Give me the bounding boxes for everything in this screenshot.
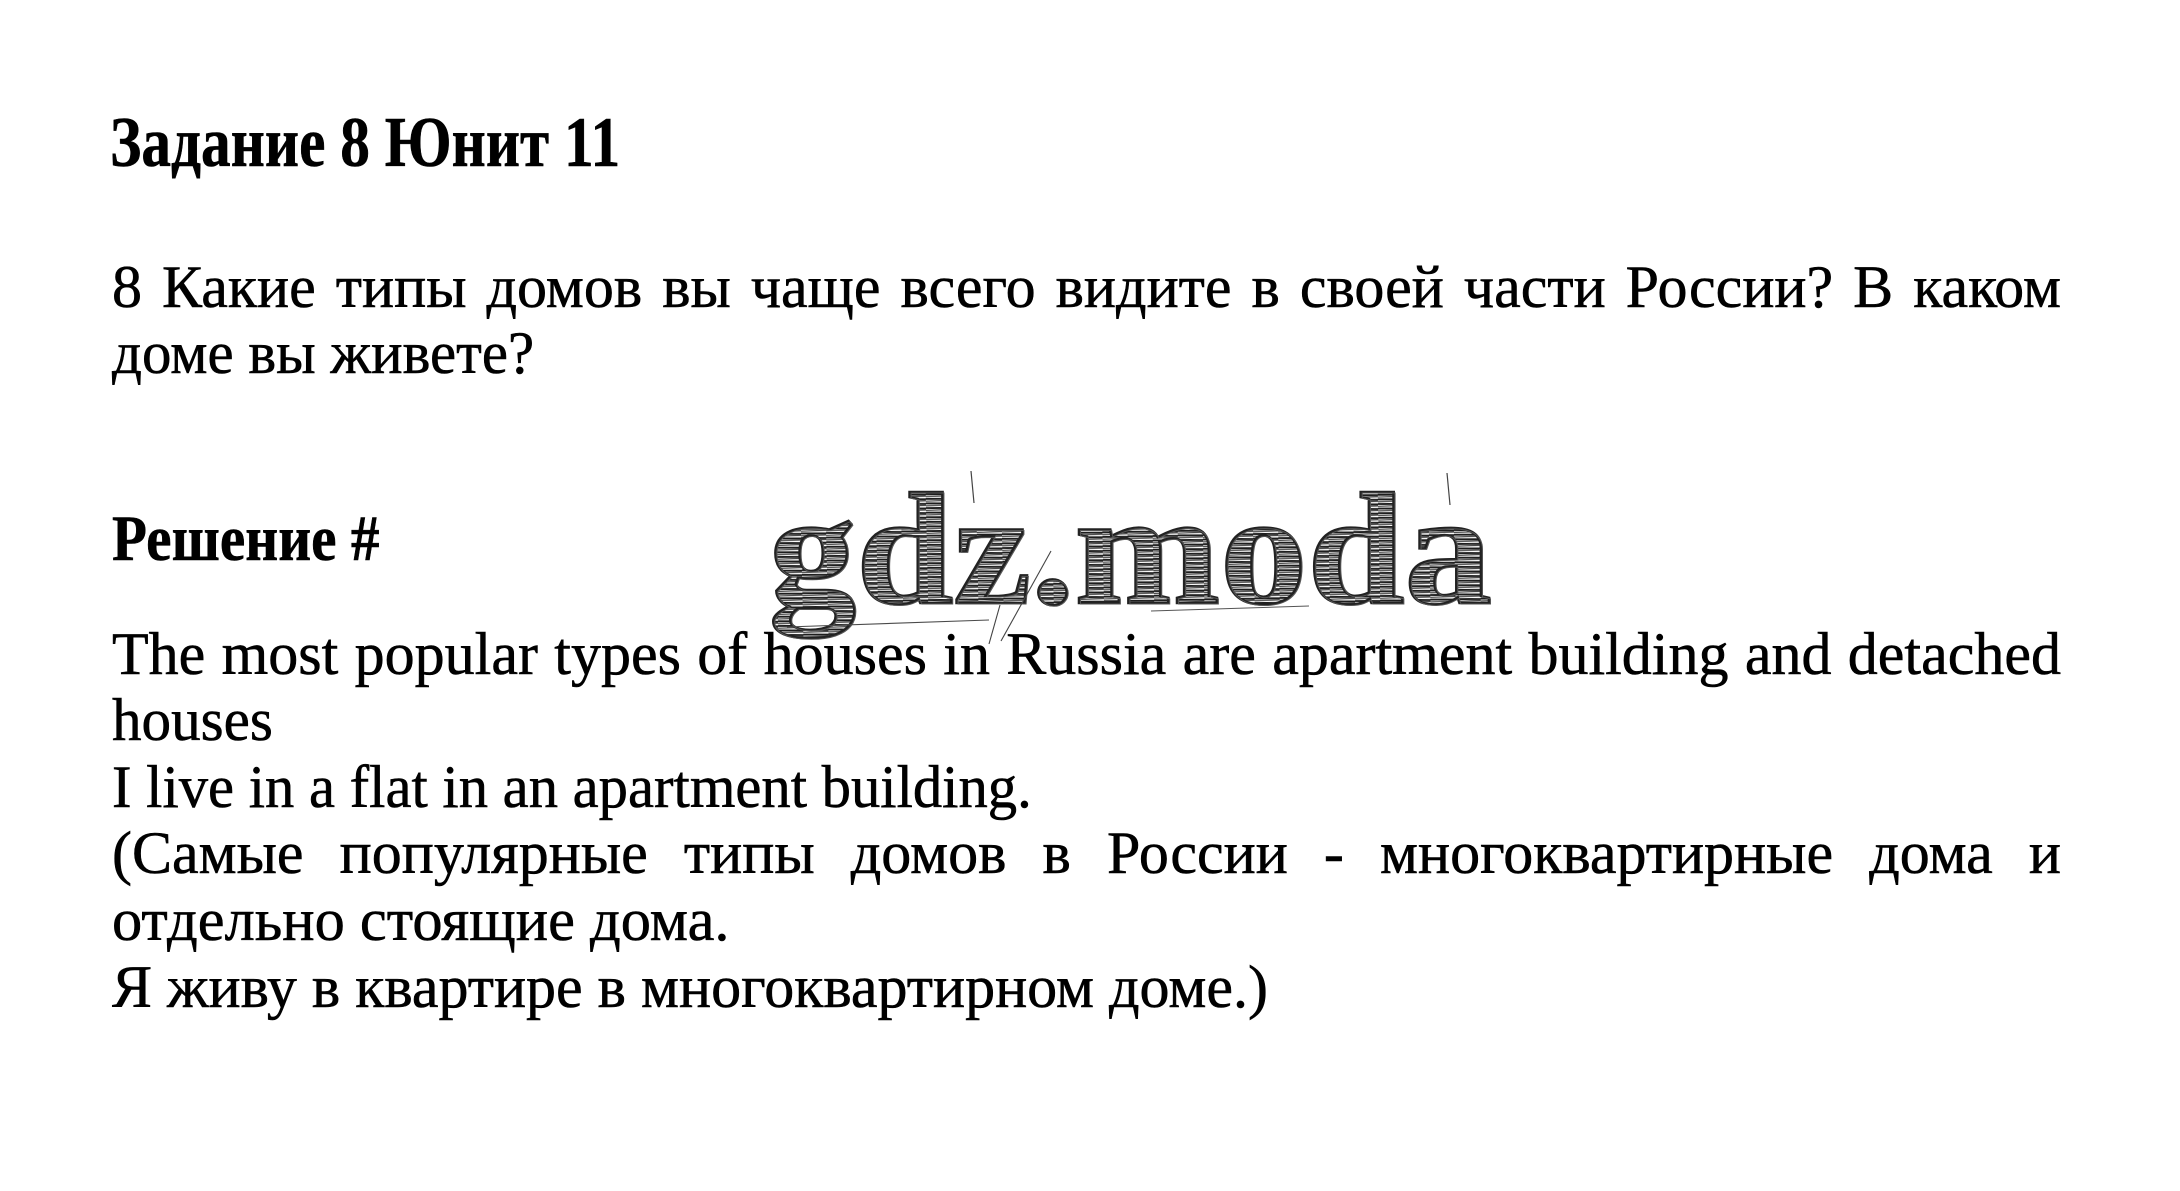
svg-text:gdz.moda: gdz.moda bbox=[770, 463, 1493, 640]
